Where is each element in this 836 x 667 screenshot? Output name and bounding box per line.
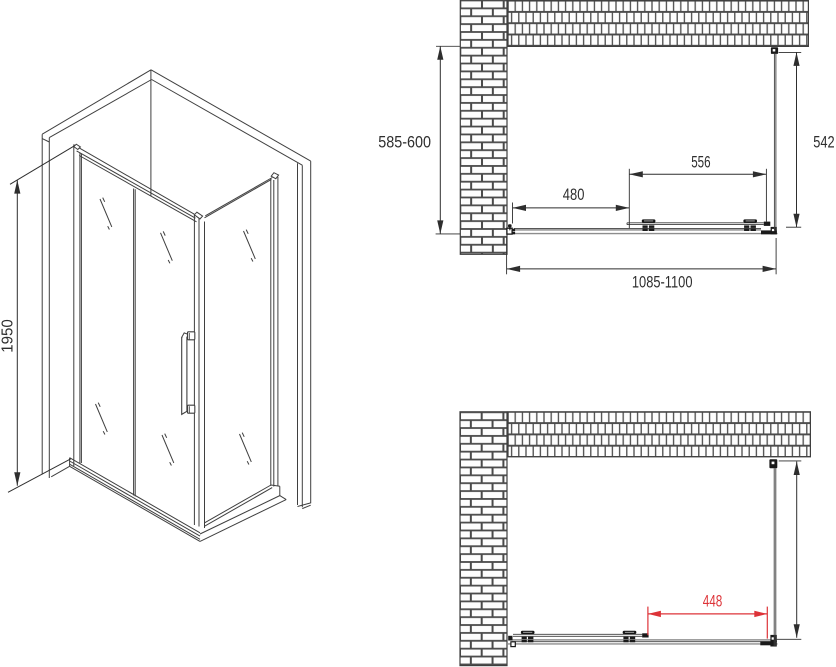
svg-text:556: 556 <box>691 153 710 172</box>
svg-text:448: 448 <box>703 591 723 610</box>
svg-text:1950: 1950 <box>0 319 17 353</box>
svg-text:585-600: 585-600 <box>378 133 431 152</box>
svg-text:1085-1100: 1085-1100 <box>632 272 693 291</box>
svg-text:542: 542 <box>813 132 834 151</box>
svg-text:480: 480 <box>563 185 585 204</box>
